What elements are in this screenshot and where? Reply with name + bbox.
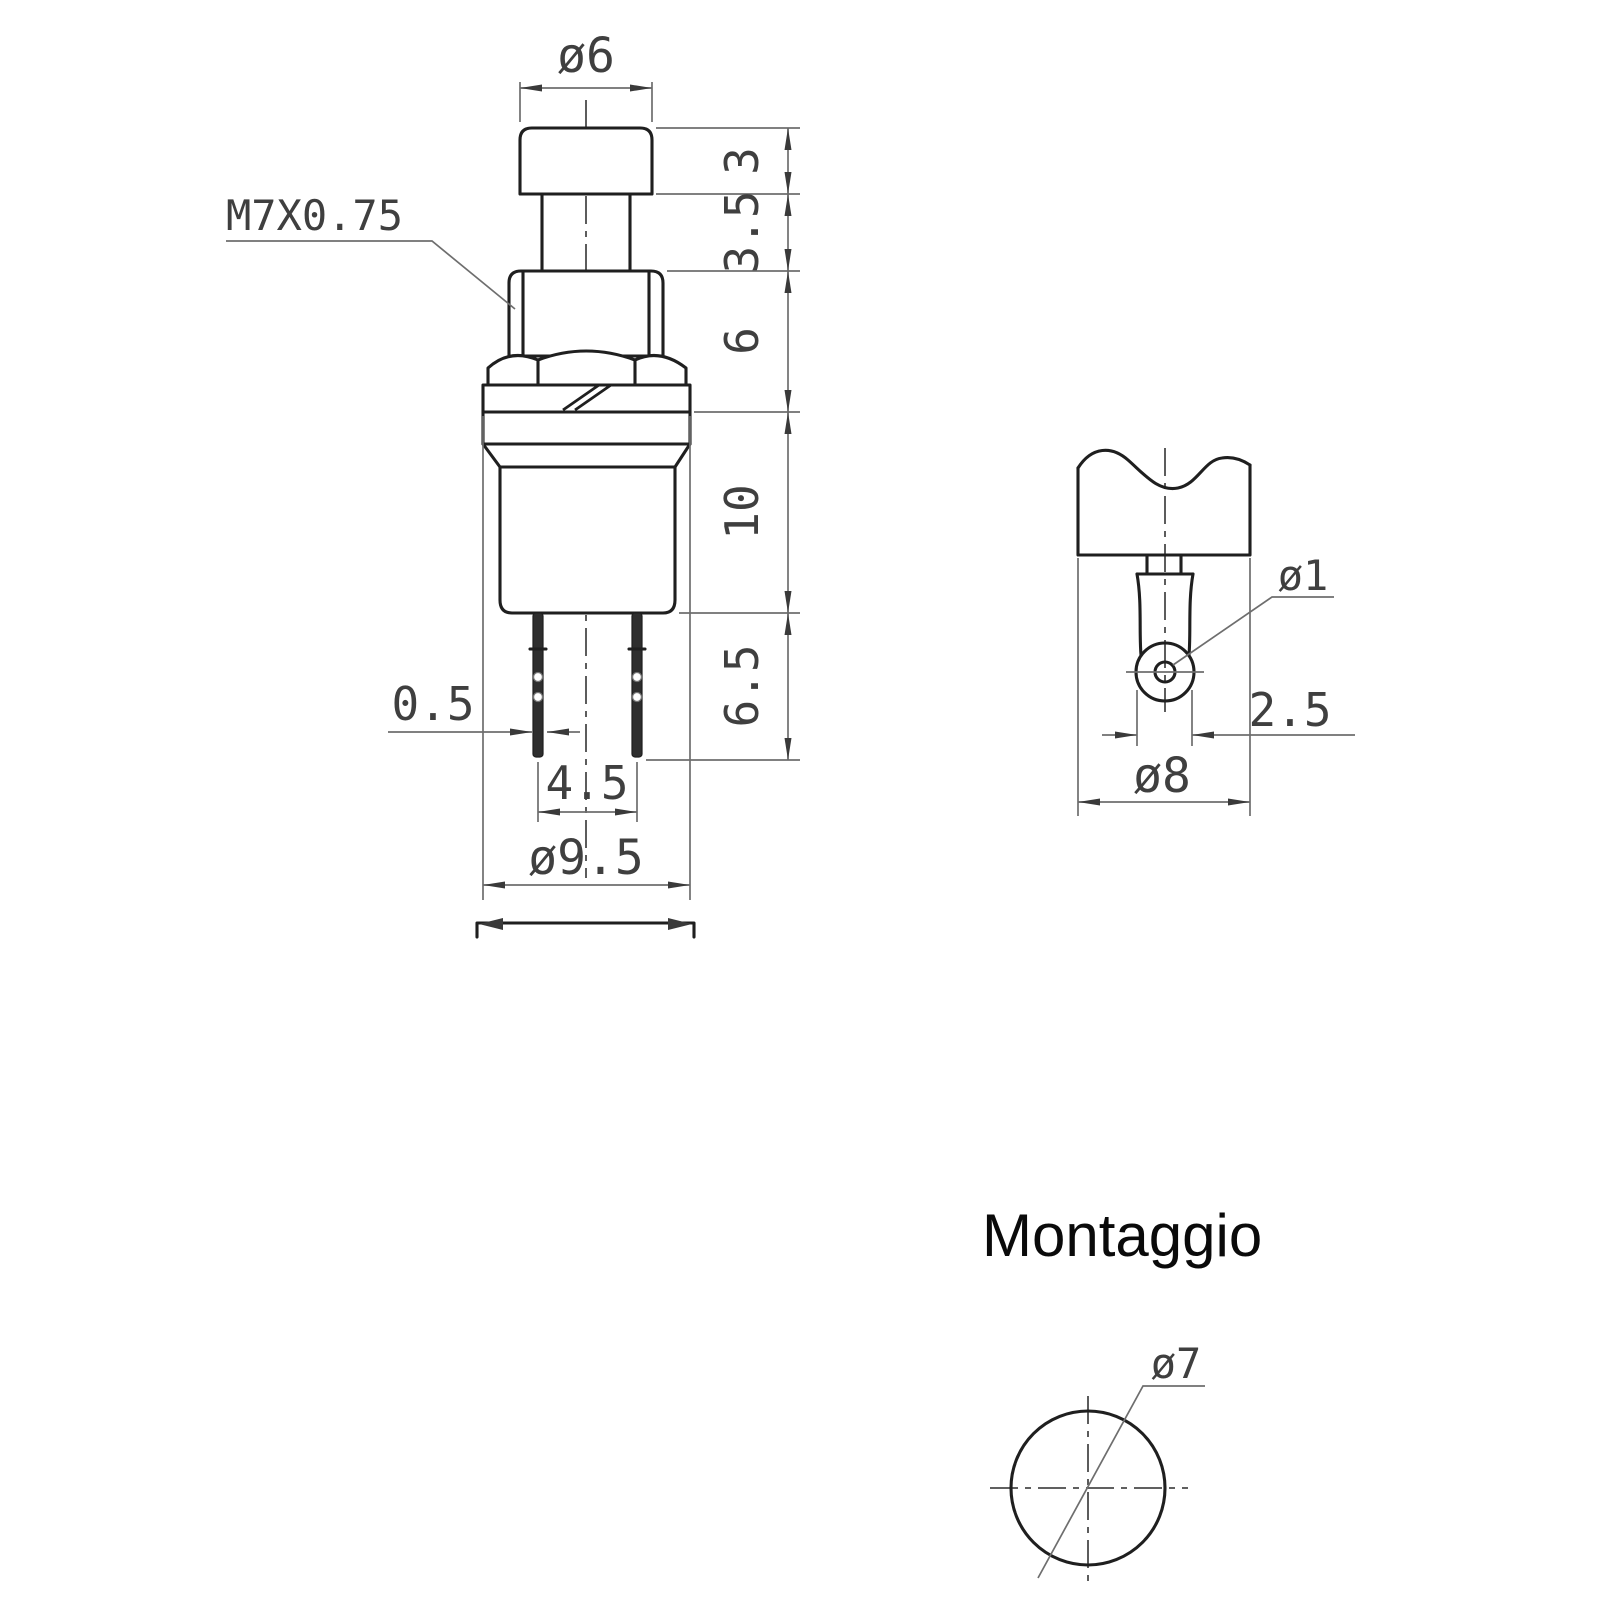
dim-terminal-width-label: 2.5 xyxy=(1248,683,1331,737)
threaded-bushing xyxy=(509,271,663,356)
terminal-hole-right-2 xyxy=(633,693,642,702)
switch-body xyxy=(500,467,675,613)
dim-cap-height-label: 3 xyxy=(715,147,769,175)
dim-hole-diameter: ø1 xyxy=(1173,551,1334,665)
dim-terminal-pitch-label: 4.5 xyxy=(545,756,628,810)
terminal-pin-right xyxy=(632,613,642,757)
dim-stem-height-label: 3.5 xyxy=(715,190,769,273)
dim-terminal-width: 2.5 xyxy=(1102,683,1355,746)
hex-nut xyxy=(488,351,686,385)
dim-terminal-pitch: 4.5 xyxy=(538,756,637,822)
dim-hole-diameter-leader xyxy=(1173,597,1334,665)
dim-terminal-length-label: 6.5 xyxy=(715,644,769,727)
terminal-hole-left-2 xyxy=(534,693,543,702)
mounting-hole-diameter-label: ø7 xyxy=(1151,1339,1202,1388)
terminal-hole-left-1 xyxy=(534,673,543,682)
dim-terminal-thickness-label: 0.5 xyxy=(391,677,474,731)
dim-housing-diameter-label: ø8 xyxy=(1133,748,1191,804)
terminal-pin-left xyxy=(533,613,543,757)
flange-washer xyxy=(483,385,690,467)
mounting-title: Montaggio xyxy=(982,1202,1262,1269)
technical-drawing-page: ø6 M7X0.75 3 3.5 6 10 6.5 0.5 xyxy=(0,0,1600,1600)
terminal-detail-view: ø1 2.5 ø8 xyxy=(1078,448,1355,816)
mounting-hole-centerlines xyxy=(990,1396,1188,1582)
detail-break-line xyxy=(1078,450,1250,488)
button-cap xyxy=(520,128,652,194)
mounting-view: Montaggio ø7 xyxy=(982,1202,1262,1582)
thread-callout: M7X0.75 xyxy=(226,191,515,309)
dim-body-height-label: 10 xyxy=(715,484,769,539)
panel-reference-bracket xyxy=(477,918,694,937)
dim-terminal-thickness: 0.5 xyxy=(388,677,580,732)
thread-leader-line xyxy=(226,241,515,309)
switch-drawing-svg: ø6 M7X0.75 3 3.5 6 10 6.5 0.5 xyxy=(0,0,1600,1600)
terminal-hole-right-1 xyxy=(633,673,642,682)
dim-housing-diameter: ø8 xyxy=(1078,558,1250,816)
thread-spec-label: M7X0.75 xyxy=(226,191,403,240)
dim-bushing-height-label: 6 xyxy=(715,327,769,355)
dim-cap-diameter-label: ø6 xyxy=(557,28,615,84)
detail-housing xyxy=(1078,465,1250,555)
dim-hole-diameter-label: ø1 xyxy=(1278,551,1329,600)
front-view: ø6 M7X0.75 3 3.5 6 10 6.5 0.5 xyxy=(226,28,800,937)
dim-body-diameter-label: ø9.5 xyxy=(528,830,644,886)
panel-bracket-line xyxy=(477,923,694,937)
